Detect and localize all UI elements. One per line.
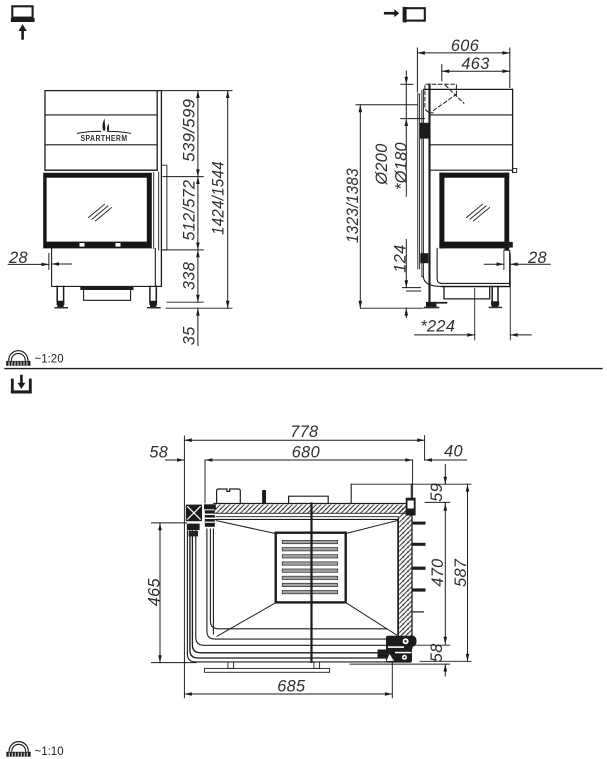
svg-text:338: 338 xyxy=(181,262,199,290)
svg-text:Ø200: Ø200 xyxy=(373,143,391,185)
svg-text:~1:10: ~1:10 xyxy=(35,746,64,758)
svg-text:35: 35 xyxy=(181,326,199,345)
svg-text:680: 680 xyxy=(292,444,320,462)
svg-text:*224: *224 xyxy=(420,318,455,336)
svg-text:587: 587 xyxy=(452,558,470,587)
svg-text:SPARTHERM: SPARTHERM xyxy=(81,133,128,143)
svg-text:512/572: 512/572 xyxy=(181,180,199,241)
svg-text:58: 58 xyxy=(149,444,168,462)
svg-text:539/599: 539/599 xyxy=(181,99,199,162)
svg-text:1424/1544: 1424/1544 xyxy=(209,161,227,235)
svg-text:40: 40 xyxy=(444,443,463,461)
svg-text:465: 465 xyxy=(146,577,164,606)
svg-text:124: 124 xyxy=(392,244,410,272)
svg-text:*Ø180: *Ø180 xyxy=(393,142,411,190)
svg-text:778: 778 xyxy=(290,423,318,441)
svg-text:59: 59 xyxy=(428,483,446,502)
svg-text:470: 470 xyxy=(429,558,447,586)
svg-text:685: 685 xyxy=(277,678,306,696)
svg-text:~1:20: ~1:20 xyxy=(35,354,64,366)
svg-text:58: 58 xyxy=(428,643,446,662)
svg-text:463: 463 xyxy=(461,55,489,73)
svg-text:1323/1383: 1323/1383 xyxy=(344,168,362,243)
svg-text:606: 606 xyxy=(451,37,480,55)
